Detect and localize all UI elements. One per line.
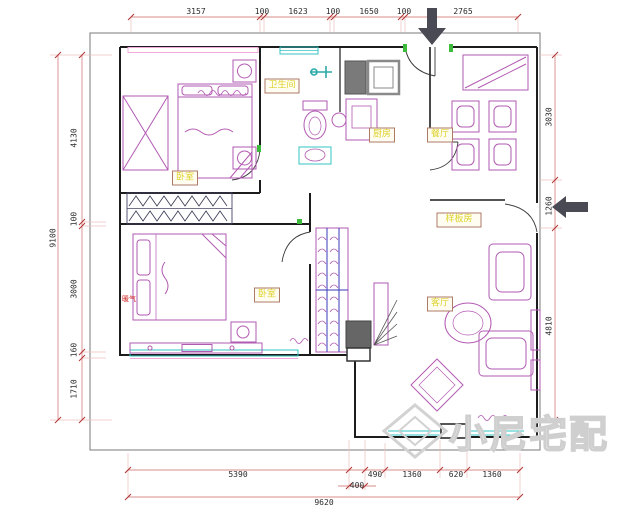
dim-right-1: 3030 <box>545 107 554 126</box>
dim-left-2: 100 <box>70 212 79 226</box>
dim-left-total: 9100 <box>49 228 58 247</box>
dim-bottom-1: 5390 <box>228 470 247 479</box>
furniture-bedroom-bottom <box>127 193 308 353</box>
dim-bottom-4: 620 <box>449 470 463 479</box>
dim-right-3: 4810 <box>545 316 554 335</box>
dim-top-4: 100 <box>326 7 340 16</box>
dim-left-4: 160 <box>70 343 79 357</box>
dim-bottom-total: 9620 <box>314 498 333 507</box>
dim-top-5: 1650 <box>359 7 378 16</box>
dim-bottom-5: 1360 <box>482 470 501 479</box>
dim-left-1: 4130 <box>70 128 79 147</box>
dim-left-5: 1710 <box>70 379 79 398</box>
furniture-living <box>411 244 540 421</box>
dim-top-7: 2765 <box>453 7 472 16</box>
wardrobe-closet <box>316 228 348 352</box>
furniture-dining <box>452 55 528 170</box>
dim-right-2: 1260 <box>545 196 554 215</box>
dim-bottom-3: 1360 <box>402 470 421 479</box>
dim-top-1: 3157 <box>186 7 205 16</box>
room-label-model-room: 样板房 <box>436 213 481 228</box>
furniture-bedroom-top <box>123 60 256 178</box>
entry-arrow-right <box>552 196 588 218</box>
walls <box>120 47 537 437</box>
dim-top-3: 1623 <box>288 7 307 16</box>
room-label-bedroom-bottom: 卧室 <box>254 288 280 303</box>
dim-bottom-2: 490 <box>368 470 382 479</box>
watermark-text: 小尼宅配 <box>449 404 609 459</box>
dim-top-2: 100 <box>255 7 269 16</box>
entry-arrow-top <box>418 8 446 45</box>
stairs-duct <box>346 283 397 361</box>
heater-note: 暖气 <box>122 294 136 304</box>
dim-bottom-sub: 400 <box>350 481 364 490</box>
room-label-kitchen: 厨房 <box>369 128 395 143</box>
furniture-bathroom <box>299 66 332 164</box>
room-label-bathroom: 卫生间 <box>264 79 299 94</box>
dim-left-3: 3000 <box>70 279 79 298</box>
floorplan-canvas: 3157 100 1623 100 1650 100 2765 9100 413… <box>0 0 640 512</box>
room-label-living: 客厅 <box>427 297 453 312</box>
room-label-bedroom-top: 卧室 <box>172 171 198 186</box>
dim-top-6: 100 <box>397 7 411 16</box>
room-label-dining: 餐厅 <box>427 128 453 143</box>
faucet-icon <box>310 66 332 78</box>
